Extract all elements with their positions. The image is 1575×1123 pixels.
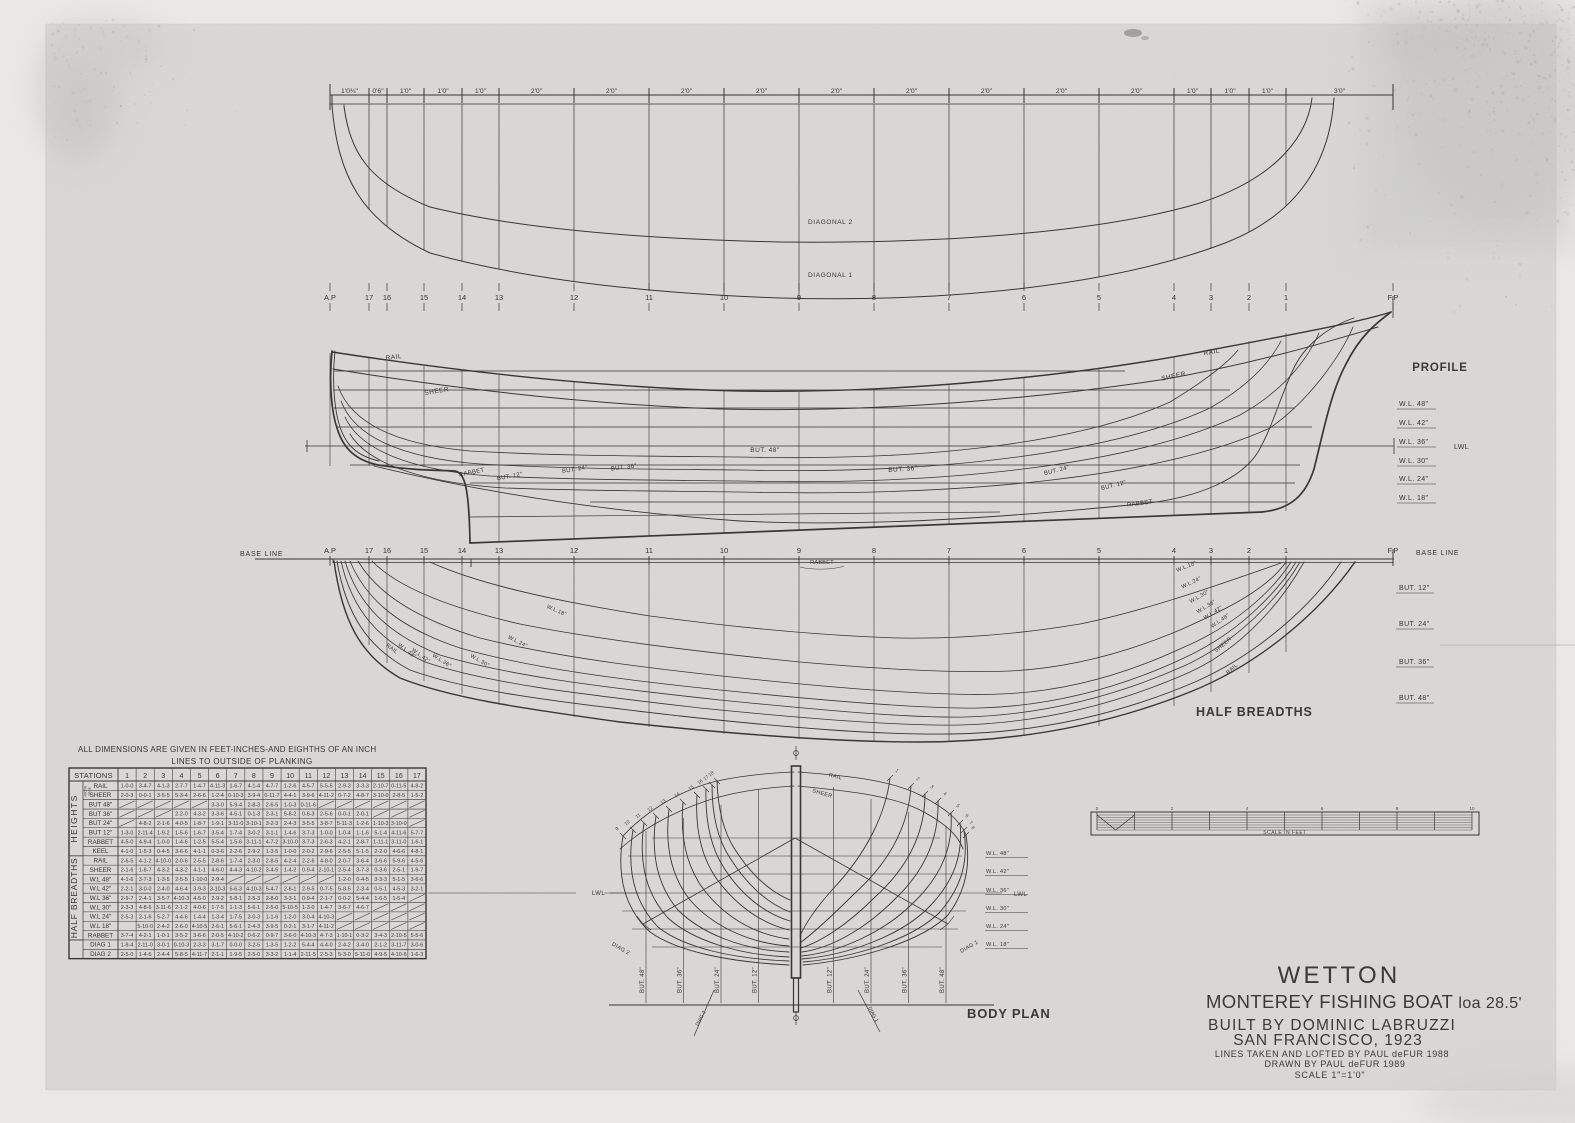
svg-text:1-1-6: 1-1-6: [356, 830, 369, 836]
svg-text:A.P: A.P: [324, 546, 336, 555]
svg-text:BUT. 36": BUT. 36": [903, 967, 909, 993]
svg-text:1'0": 1'0": [437, 88, 449, 95]
svg-text:BUT. 48": BUT. 48": [750, 447, 780, 454]
svg-text:5: 5: [198, 773, 202, 780]
svg-text:1'0": 1'0": [1224, 88, 1236, 95]
svg-text:3-7-3: 3-7-3: [302, 840, 315, 846]
svg-text:3: 3: [161, 773, 165, 780]
svg-text:2-8-6: 2-8-6: [211, 858, 224, 864]
svg-text:2-4-3: 2-4-3: [248, 924, 261, 930]
svg-text:0-9-7: 0-9-7: [266, 933, 279, 939]
svg-text:0'6": 0'6": [372, 88, 384, 95]
svg-text:HALF BREADTHS: HALF BREADTHS: [1196, 705, 1313, 719]
svg-text:8: 8: [252, 773, 256, 780]
svg-text:12: 12: [322, 773, 330, 780]
svg-text:4-11-2: 4-11-2: [319, 924, 334, 930]
svg-text:1-1-6: 1-1-6: [266, 914, 279, 920]
svg-text:0-11-5: 0-11-5: [391, 784, 406, 790]
svg-text:6: 6: [216, 773, 220, 780]
svg-text:15: 15: [377, 773, 385, 780]
svg-text:2-1-7: 2-1-7: [320, 896, 333, 902]
svg-text:3-11-0: 3-11-0: [391, 840, 406, 846]
svg-text:PROFILE: PROFILE: [1412, 362, 1467, 374]
svg-text:4-5-0: 4-5-0: [121, 840, 134, 846]
svg-text:4-10-5: 4-10-5: [192, 924, 208, 930]
svg-text:2-0-6: 2-0-6: [175, 858, 188, 864]
svg-text:3-0-3: 3-0-3: [248, 914, 261, 920]
svg-text:1-10-3: 1-10-3: [373, 821, 389, 827]
svg-text:9: 9: [797, 293, 801, 302]
svg-text:2'0": 2'0": [531, 88, 543, 95]
svg-text:2-5-0: 2-5-0: [248, 952, 261, 958]
svg-text:4-8-7: 4-8-7: [356, 793, 369, 799]
svg-text:1-5-3: 1-5-3: [139, 849, 152, 855]
svg-text:5-8-5: 5-8-5: [338, 886, 351, 892]
svg-text:5-5-6: 5-5-6: [411, 933, 424, 939]
svg-text:2'0": 2'0": [681, 88, 693, 95]
svg-text:2-3-3: 2-3-3: [121, 905, 134, 911]
svg-text:1-6-7: 1-6-7: [229, 784, 242, 790]
svg-text:2'0": 2'0": [1056, 88, 1068, 95]
svg-text:2-10-1: 2-10-1: [319, 868, 335, 874]
svg-text:2-5-5: 2-5-5: [175, 877, 188, 883]
svg-text:4-10-0: 4-10-0: [155, 858, 171, 864]
svg-text:2-6-6: 2-6-6: [193, 793, 206, 799]
svg-text:SCALE IN FEET: SCALE IN FEET: [1263, 830, 1306, 836]
svg-text:6: 6: [1022, 293, 1026, 302]
svg-text:RABBET: RABBET: [88, 839, 113, 846]
svg-text:5-5-4: 5-5-4: [211, 840, 224, 846]
svg-text:HEIGHTS: HEIGHTS: [69, 794, 79, 842]
svg-text:10: 10: [1469, 806, 1475, 811]
svg-text:1-6-5: 1-6-5: [374, 896, 387, 902]
svg-text:8: 8: [872, 293, 876, 302]
svg-text:3-3-3: 3-3-3: [356, 784, 369, 790]
svg-text:3-5-4: 3-5-4: [211, 830, 224, 836]
svg-text:0-0-1: 0-0-1: [139, 793, 152, 799]
svg-text:5-8-1: 5-8-1: [229, 896, 242, 902]
svg-text:4-3-2: 4-3-2: [175, 868, 188, 874]
svg-text:10: 10: [286, 773, 294, 780]
svg-text:4-11-3: 4-11-3: [210, 784, 225, 790]
svg-text:4: 4: [179, 773, 183, 780]
svg-text:2-2-0: 2-2-0: [175, 812, 188, 818]
svg-text:4-5-6: 4-5-6: [411, 858, 424, 864]
svg-text:W.L. 30": W.L. 30": [1399, 458, 1429, 465]
svg-text:2'0": 2'0": [906, 88, 918, 95]
svg-text:2-5-3: 2-5-3: [320, 952, 333, 958]
svg-text:2'0": 2'0": [831, 88, 843, 95]
svg-text:3-10-0: 3-10-0: [391, 821, 407, 827]
svg-text:3-7-3: 3-7-3: [302, 830, 315, 836]
svg-text:0-7-5: 0-7-5: [320, 886, 333, 892]
svg-text:1-0-0: 1-0-0: [157, 840, 170, 846]
svg-text:2-0-3: 2-0-3: [121, 793, 134, 799]
svg-text:4-2-4: 4-2-4: [284, 858, 297, 864]
svg-text:2-5-0: 2-5-0: [121, 952, 134, 958]
svg-text:3-6-4: 3-6-4: [356, 858, 369, 864]
svg-text:HALF BREADTHS: HALF BREADTHS: [69, 857, 79, 938]
svg-text:RAIL: RAIL: [94, 783, 108, 790]
svg-text:0-4-5: 0-4-5: [356, 877, 369, 883]
svg-text:3-3-2: 3-3-2: [266, 952, 279, 958]
svg-text:W.L. 24": W.L. 24": [1399, 476, 1429, 483]
svg-text:3-4-7: 3-4-7: [139, 784, 152, 790]
svg-text:3-11-1: 3-11-1: [246, 840, 261, 846]
svg-text:1-3-0: 1-3-0: [121, 830, 134, 836]
svg-text:3-6-6: 3-6-6: [175, 849, 188, 855]
svg-text:4-6-4: 4-6-4: [175, 886, 188, 892]
svg-text:4-10-3: 4-10-3: [246, 886, 262, 892]
svg-text:3-3-0: 3-3-0: [211, 802, 224, 808]
svg-text:1-5-6: 1-5-6: [175, 830, 188, 836]
svg-text:1-5-4: 1-5-4: [393, 896, 406, 902]
svg-text:0-0-0: 0-0-0: [229, 943, 242, 949]
svg-text:2-9-5: 2-9-5: [302, 886, 315, 892]
svg-text:3-2-5: 3-2-5: [248, 943, 261, 949]
svg-text:4-6-6: 4-6-6: [393, 849, 406, 855]
svg-text:3-5-5: 3-5-5: [302, 821, 315, 827]
svg-text:3-1-7: 3-1-7: [211, 943, 224, 949]
svg-text:15: 15: [420, 293, 428, 302]
svg-text:1-0-1: 1-0-1: [157, 933, 170, 939]
svg-text:DIAG 1: DIAG 1: [90, 942, 111, 949]
svg-text:3-3-6: 3-3-6: [211, 812, 224, 818]
svg-text:1-4-6: 1-4-6: [284, 830, 297, 836]
svg-text:DRAWN BY PAUL deFUR 1989: DRAWN BY PAUL deFUR 1989: [1265, 1059, 1406, 1069]
svg-text:2-3-3: 2-3-3: [193, 943, 206, 949]
svg-text:4-9-4: 4-9-4: [139, 840, 152, 846]
svg-text:W.L 30": W.L 30": [90, 904, 112, 911]
svg-text:BUT. 48": BUT. 48": [640, 967, 646, 993]
svg-text:2-5-5: 2-5-5: [338, 849, 351, 855]
svg-text:4-11-2: 4-11-2: [319, 793, 334, 799]
svg-text:2-8-5: 2-8-5: [393, 793, 406, 799]
svg-text:1-9-2: 1-9-2: [157, 830, 170, 836]
svg-text:2-8-5: 2-8-5: [266, 858, 279, 864]
svg-text:3-4-3: 3-4-3: [374, 933, 387, 939]
svg-text:WETTON: WETTON: [1278, 962, 1401, 989]
svg-text:4-3-2: 4-3-2: [157, 868, 170, 874]
svg-text:W.L 18": W.L 18": [90, 923, 112, 930]
svg-text:W.L 48": W.L 48": [90, 876, 112, 883]
svg-text:1-4-2: 1-4-2: [284, 868, 297, 874]
svg-text:2'0": 2'0": [606, 88, 618, 95]
svg-text:2-0-5: 2-0-5: [211, 933, 224, 939]
svg-text:4-5-0: 4-5-0: [193, 896, 206, 902]
svg-text:4-9-5: 4-9-5: [374, 952, 387, 958]
svg-text:STATIONS: STATIONS: [74, 771, 113, 780]
svg-text:1-5-2: 1-5-2: [411, 793, 424, 799]
svg-text:2-9-2: 2-9-2: [248, 849, 261, 855]
svg-text:4-1-3: 4-1-3: [157, 784, 170, 790]
svg-text:2-6-1: 2-6-1: [284, 886, 297, 892]
svg-text:W.L. 42": W.L. 42": [986, 869, 1009, 875]
svg-text:0-0-1: 0-0-1: [338, 812, 351, 818]
svg-text:2'0": 2'0": [1131, 88, 1143, 95]
svg-text:1-0-3: 1-0-3: [284, 802, 297, 808]
svg-text:2-2-6: 2-2-6: [229, 849, 242, 855]
svg-text:1-3-5: 1-3-5: [266, 943, 279, 949]
svg-text:8: 8: [872, 546, 876, 555]
svg-text:SCALE 1"=1'0": SCALE 1"=1'0": [1295, 1070, 1366, 1080]
svg-text:LWL: LWL: [1454, 444, 1469, 451]
svg-text:1-2-6: 1-2-6: [284, 784, 297, 790]
svg-text:2-4-0: 2-4-0: [157, 886, 170, 892]
svg-text:9: 9: [797, 546, 801, 555]
svg-text:3-5-2: 3-5-2: [175, 933, 188, 939]
svg-text:1-8-7: 1-8-7: [193, 821, 206, 827]
svg-text:0-7-2: 0-7-2: [338, 793, 351, 799]
svg-text:4-10-3: 4-10-3: [300, 933, 316, 939]
svg-text:4-5-7: 4-5-7: [302, 784, 315, 790]
svg-text:3-8-7: 3-8-7: [320, 821, 333, 827]
svg-text:14: 14: [458, 546, 466, 555]
svg-text:3-0-4: 3-0-4: [302, 914, 315, 920]
svg-text:W.L. 36": W.L. 36": [986, 888, 1009, 894]
svg-text:11: 11: [645, 546, 653, 555]
svg-text:BASE LINE: BASE LINE: [1416, 550, 1459, 557]
svg-text:1-3-0: 1-3-0: [302, 905, 315, 911]
svg-text:SAN FRANCISCO, 1923: SAN FRANCISCO, 1923: [1233, 1032, 1423, 1049]
svg-text:3-10-3: 3-10-3: [210, 886, 226, 892]
svg-text:4-7-3: 4-7-3: [320, 933, 333, 939]
svg-text:4-1-1: 4-1-1: [193, 849, 206, 855]
svg-text:5-10-5: 5-10-5: [282, 905, 298, 911]
svg-text:3-6-6: 3-6-6: [374, 858, 387, 864]
svg-text:MONTEREY FISHING BOAT loa 28.5: MONTEREY FISHING BOAT loa 28.5': [1206, 991, 1522, 1012]
svg-text:4-0-6: 4-0-6: [193, 905, 206, 911]
svg-text:4-1-6: 4-1-6: [121, 877, 134, 883]
svg-text:0-9-4: 0-9-4: [302, 896, 315, 902]
svg-text:1-10-1: 1-10-1: [337, 933, 353, 939]
svg-text:W.L. 18": W.L. 18": [1399, 495, 1429, 502]
svg-text:4-1-0: 4-1-0: [121, 849, 134, 855]
svg-text:2-6-5: 2-6-5: [121, 858, 134, 864]
svg-text:5-8-5: 5-8-5: [175, 952, 188, 958]
svg-text:DIAGONAL 2: DIAGONAL 2: [808, 219, 853, 226]
svg-text:W.L. 30": W.L. 30": [986, 906, 1009, 912]
svg-text:RABBET: RABBET: [88, 932, 113, 939]
svg-text:3-6-6: 3-6-6: [193, 933, 206, 939]
svg-text:1: 1: [1284, 293, 1288, 302]
svg-text:2-2-1: 2-2-1: [121, 886, 134, 892]
svg-text:1-4-6: 1-4-6: [175, 840, 188, 846]
svg-text:2-5-3: 2-5-3: [248, 896, 261, 902]
svg-text:3-0-0: 3-0-0: [139, 886, 152, 892]
svg-text:0-11-6: 0-11-6: [301, 802, 316, 808]
svg-text:W.L. 36": W.L. 36": [1399, 439, 1429, 446]
svg-text:3-0-2: 3-0-2: [248, 830, 261, 836]
svg-text:W.L 24": W.L 24": [90, 914, 112, 921]
svg-text:5-11-3: 5-11-3: [337, 821, 352, 827]
svg-text:2-2-0: 2-2-0: [374, 849, 387, 855]
svg-text:2'0": 2'0": [981, 88, 993, 95]
svg-text:5-2-7: 5-2-7: [157, 914, 170, 920]
svg-text:7: 7: [947, 293, 951, 302]
svg-text:2-2-6: 2-2-6: [302, 858, 315, 864]
svg-text:3-9-4: 3-9-4: [248, 793, 261, 799]
svg-text:0-3-6: 0-3-6: [211, 849, 224, 855]
svg-text:4-1-2: 4-1-2: [139, 858, 152, 864]
svg-text:3-6-0: 3-6-0: [284, 933, 297, 939]
svg-text:5-1-5: 5-1-5: [356, 849, 369, 855]
svg-text:15: 15: [420, 546, 428, 555]
svg-text:12: 12: [570, 546, 578, 555]
svg-text:0-11-7: 0-11-7: [264, 793, 279, 799]
svg-text:BUT 48": BUT 48": [89, 801, 112, 808]
svg-text:5-8-2: 5-8-2: [284, 812, 297, 818]
svg-text:4-6-0: 4-6-0: [211, 868, 224, 874]
svg-text:1-4-4: 1-4-4: [193, 914, 206, 920]
svg-text:BUT. 12": BUT. 12": [1399, 585, 1430, 592]
svg-text:2-5-1: 2-5-1: [393, 868, 406, 874]
svg-text:17: 17: [413, 773, 421, 780]
svg-text:2-4-4: 2-4-4: [157, 952, 170, 958]
svg-text:4-10-2: 4-10-2: [228, 933, 244, 939]
svg-text:1-0-0: 1-0-0: [320, 830, 333, 836]
svg-text:5-4-4: 5-4-4: [356, 896, 369, 902]
svg-text:10: 10: [720, 293, 728, 302]
svg-text:SHEER: SHEER: [90, 792, 112, 799]
svg-text:W.L. 48": W.L. 48": [1399, 401, 1429, 408]
svg-text:3-3-1: 3-3-1: [284, 896, 297, 902]
svg-text:13: 13: [341, 773, 349, 780]
svg-text:3-11-6: 3-11-6: [156, 905, 171, 911]
svg-text:3-9-5: 3-9-5: [266, 924, 279, 930]
svg-text:2-3-1: 2-3-1: [266, 812, 279, 818]
svg-text:BUT. 36": BUT. 36": [678, 967, 684, 993]
svg-text:2-1-6: 2-1-6: [121, 868, 134, 874]
svg-text:3-1-1: 3-1-1: [266, 830, 279, 836]
svg-text:2-6-3: 2-6-3: [320, 840, 333, 846]
svg-text:5-6-3: 5-6-3: [229, 886, 242, 892]
svg-text:BUT. 24": BUT. 24": [715, 967, 721, 993]
svg-text:2-10-7: 2-10-7: [373, 784, 389, 790]
svg-text:LINES TO OUTSIDE OF PLANKING: LINES TO OUTSIDE OF PLANKING: [171, 757, 312, 766]
svg-text:2-11-4: 2-11-4: [138, 830, 153, 836]
svg-text:1'0": 1'0": [475, 88, 487, 95]
svg-text:2-9-3: 2-9-3: [338, 784, 351, 790]
svg-text:3-1-7: 3-1-7: [302, 924, 315, 930]
svg-text:ALL DIMENSIONS ARE GIVEN IN FE: ALL DIMENSIONS ARE GIVEN IN FEET-INCHES-…: [78, 745, 376, 754]
svg-text:3-4-5: 3-4-5: [266, 868, 279, 874]
svg-text:W.L. 48": W.L. 48": [986, 851, 1009, 857]
svg-text:1-9-1: 1-9-1: [211, 821, 224, 827]
svg-text:1'0": 1'0": [400, 88, 412, 95]
svg-text:4-2-1: 4-2-1: [338, 840, 351, 846]
svg-text:4-7-7: 4-7-7: [266, 784, 279, 790]
svg-text:2-7-7: 2-7-7: [175, 784, 188, 790]
svg-text:4-8-2: 4-8-2: [139, 821, 152, 827]
svg-text:1-9-4: 1-9-4: [121, 943, 134, 949]
svg-text:1-1-3: 1-1-3: [229, 905, 242, 911]
svg-text:5-4-7: 5-4-7: [266, 886, 279, 892]
svg-text:BASE LINE: BASE LINE: [240, 551, 283, 558]
svg-text:4-8-6: 4-8-6: [139, 905, 152, 911]
svg-text:1-2-2: 1-2-2: [284, 943, 297, 949]
svg-text:14: 14: [458, 293, 466, 302]
svg-text:1-3-5: 1-3-5: [157, 877, 170, 883]
svg-text:2-4-2: 2-4-2: [157, 924, 170, 930]
svg-text:4-8-1: 4-8-1: [411, 849, 424, 855]
svg-text:4-8-0: 4-8-0: [320, 858, 333, 864]
svg-text:3-10-0: 3-10-0: [373, 793, 389, 799]
svg-text:1-3-4: 1-3-4: [211, 914, 224, 920]
svg-text:3-9-6: 3-9-6: [302, 793, 315, 799]
svg-text:RABBET: RABBET: [810, 560, 834, 566]
svg-text:5-11-0: 5-11-0: [355, 952, 370, 958]
svg-text:2-5-4: 2-5-4: [338, 868, 351, 874]
svg-text:W.L 42": W.L 42": [90, 886, 112, 893]
svg-text:1-7-4: 1-7-4: [229, 830, 242, 836]
svg-text:1-2-6: 1-2-6: [356, 821, 369, 827]
svg-text:0-4-5: 0-4-5: [157, 849, 170, 855]
svg-text:3-0-1: 3-0-1: [157, 943, 170, 949]
svg-text:2-6-1: 2-6-1: [211, 924, 224, 930]
svg-text:0-6-2: 0-6-2: [248, 933, 261, 939]
svg-text:13: 13: [495, 546, 503, 555]
svg-text:3-6-6: 3-6-6: [411, 877, 424, 883]
svg-text:1-6-1: 1-6-1: [411, 840, 424, 846]
svg-text:13: 13: [495, 293, 503, 302]
svg-text:2-4-1: 2-4-1: [139, 896, 152, 902]
svg-text:6: 6: [1022, 546, 1026, 555]
svg-text:3-0-6: 3-0-6: [411, 943, 424, 949]
svg-text:4-6-7: 4-6-7: [356, 905, 369, 911]
svg-text:16: 16: [395, 773, 403, 780]
svg-text:3'0": 3'0": [1334, 88, 1346, 95]
svg-text:LWL: LWL: [1014, 892, 1027, 898]
svg-text:2-10-5: 2-10-5: [391, 933, 407, 939]
svg-text:W.L. 24": W.L. 24": [986, 924, 1009, 930]
svg-text:5-3-4: 5-3-4: [175, 793, 188, 799]
svg-text:5: 5: [1097, 546, 1101, 555]
svg-text:0-5-1: 0-5-1: [374, 886, 387, 892]
svg-text:2: 2: [1247, 293, 1251, 302]
svg-text:0-2-1: 0-2-1: [284, 924, 297, 930]
svg-text:2-9-7: 2-9-7: [121, 896, 134, 902]
svg-text:1-0-0: 1-0-0: [121, 784, 134, 790]
svg-text:3-7-4: 3-7-4: [121, 933, 134, 939]
svg-text:2-1-1: 2-1-1: [211, 952, 224, 958]
svg-text:4-5-1: 4-5-1: [229, 812, 242, 818]
svg-text:2-1-2: 2-1-2: [374, 943, 387, 949]
svg-text:2-5-0: 2-5-0: [266, 905, 279, 911]
svg-text:BUT 36": BUT 36": [89, 811, 112, 818]
svg-text:BUT. 12": BUT. 12": [753, 967, 759, 993]
svg-text:7: 7: [234, 773, 238, 780]
svg-text:2-1-2: 2-1-2: [175, 905, 188, 911]
svg-text:2-5-3: 2-5-3: [121, 914, 134, 920]
svg-text:4-8-2: 4-8-2: [411, 784, 424, 790]
svg-text:BASE: BASE: [88, 787, 92, 796]
svg-text:4-10-3: 4-10-3: [174, 896, 190, 902]
svg-text:5-1-4: 5-1-4: [374, 830, 387, 836]
svg-text:4-10-2: 4-10-2: [246, 868, 262, 874]
svg-text:2-9-2: 2-9-2: [211, 896, 224, 902]
svg-text:2-0-7: 2-0-7: [338, 858, 351, 864]
svg-text:KEEL: KEEL: [92, 848, 109, 855]
svg-text:3-5-5: 3-5-5: [157, 793, 170, 799]
svg-text:1-1-4: 1-1-4: [284, 952, 297, 958]
svg-text:3-9-3: 3-9-3: [193, 886, 206, 892]
svg-text:0-0-2: 0-0-2: [338, 896, 351, 902]
svg-text:2: 2: [1247, 546, 1251, 555]
svg-text:3-7-3: 3-7-3: [139, 877, 152, 883]
svg-text:0-3-6: 0-3-6: [374, 868, 387, 874]
svg-text:1-4-6: 1-4-6: [139, 952, 152, 958]
